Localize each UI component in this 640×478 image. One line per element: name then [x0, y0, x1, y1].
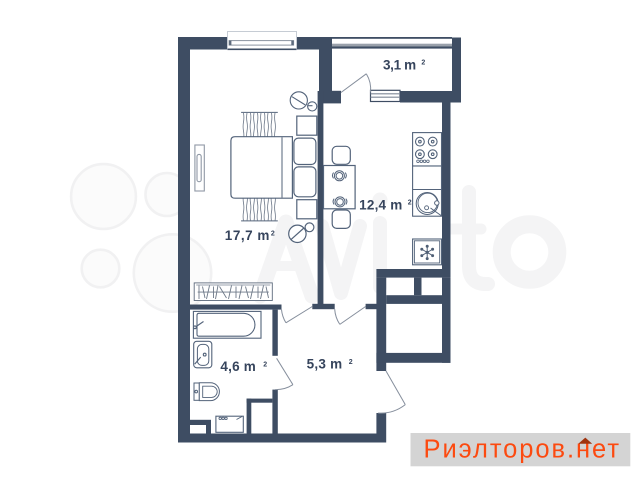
svg-text:2: 2	[349, 359, 353, 366]
svg-text:Риэлторов.нет: Риэлторов.нет	[424, 435, 620, 463]
svg-text:2: 2	[271, 230, 275, 237]
svg-text:17,7 m: 17,7 m	[225, 228, 270, 243]
svg-text:2: 2	[421, 60, 425, 67]
svg-text:3,1 m: 3,1 m	[383, 57, 416, 72]
svg-text:4,6 m: 4,6 m	[220, 359, 255, 374]
svg-text:2: 2	[408, 200, 412, 207]
svg-text:5,3 m: 5,3 m	[307, 357, 343, 372]
svg-text:2: 2	[263, 361, 267, 368]
svg-text:12,4 m: 12,4 m	[359, 197, 402, 212]
